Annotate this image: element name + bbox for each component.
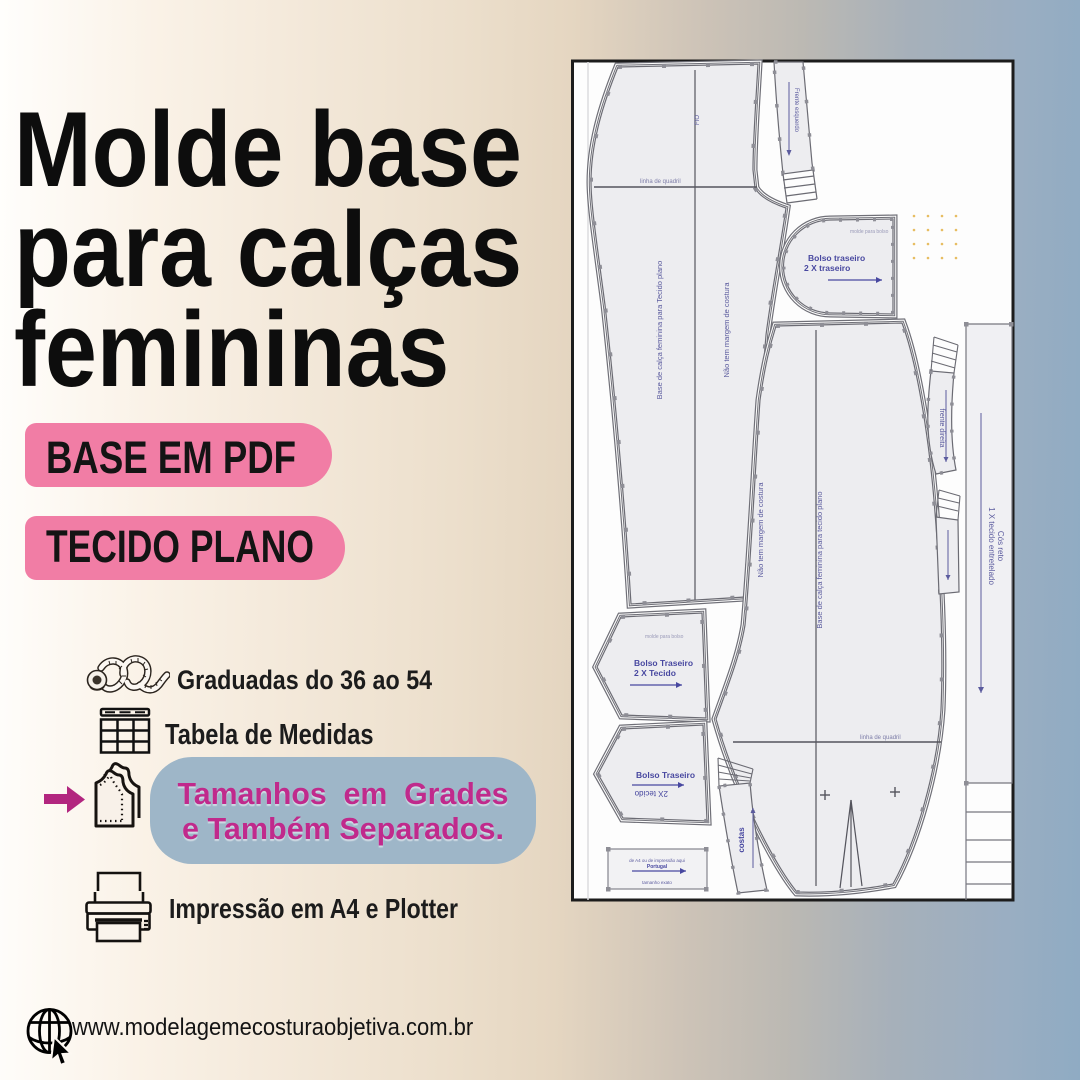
- svg-text:2 X traseiro: 2 X traseiro: [804, 263, 850, 273]
- svg-text:de A4 ou de impressão aqui: de A4 ou de impressão aqui: [629, 858, 685, 863]
- svg-text:costas: costas: [737, 827, 746, 853]
- svg-text:molde para bolso: molde para bolso: [850, 229, 889, 235]
- svg-text:Bolso traseiro: Bolso traseiro: [808, 253, 865, 263]
- svg-text:molde para bolso: molde para bolso: [645, 634, 684, 640]
- svg-text:Portugal: Portugal: [647, 864, 668, 870]
- svg-text:2X tecido: 2X tecido: [634, 789, 668, 798]
- svg-text:Bolso Traseiro: Bolso Traseiro: [634, 658, 693, 668]
- svg-text:Base de calça feminina para Te: Base de calça feminina para Tecido plano: [655, 261, 664, 400]
- svg-text:Não tem margem de costura: Não tem margem de costura: [722, 282, 731, 378]
- svg-text:frente direita: frente direita: [938, 409, 945, 448]
- svg-text:linha de quadril: linha de quadril: [640, 179, 681, 185]
- svg-text:Base de calça feminina para te: Base de calça feminina para tecido plano: [815, 491, 824, 628]
- svg-text:Não tem margem de costura: Não tem margem de costura: [756, 482, 765, 578]
- svg-text:Cós reto: Cós reto: [996, 531, 1005, 562]
- svg-text:1 X tecido entretelado: 1 X tecido entretelado: [987, 507, 996, 585]
- svg-text:linha de quadril: linha de quadril: [860, 735, 901, 741]
- svg-text:tamanho exato: tamanho exato: [642, 880, 672, 885]
- svg-text:FIO: FIO: [695, 115, 701, 125]
- svg-text:Bolso Traseiro: Bolso Traseiro: [636, 770, 695, 780]
- svg-text:2 X Tecido: 2 X Tecido: [634, 668, 676, 678]
- svg-text:Frente esquerdo: Frente esquerdo: [793, 88, 799, 133]
